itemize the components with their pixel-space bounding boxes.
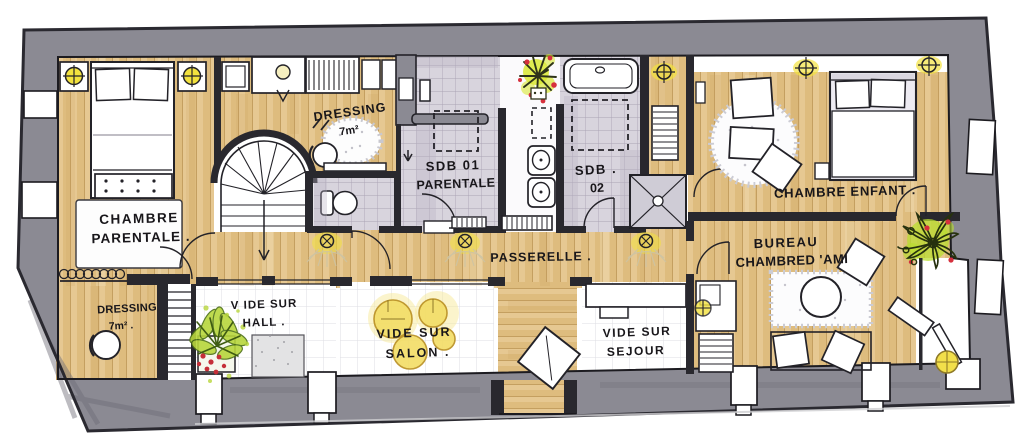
svg-text:SDB .: SDB . <box>575 161 618 178</box>
svg-text:02: 02 <box>590 181 605 196</box>
svg-text:PARENTALE .: PARENTALE . <box>91 229 190 247</box>
svg-text:VIDE SUR: VIDE SUR <box>376 325 451 342</box>
svg-text:V IDE SUR: V IDE SUR <box>231 298 298 312</box>
svg-text:PASSERELLE .: PASSERELLE . <box>490 249 592 265</box>
svg-text:SDB 01: SDB 01 <box>425 157 480 174</box>
svg-text:SALON .: SALON . <box>385 345 450 361</box>
svg-text:PARENTALE: PARENTALE <box>416 176 495 193</box>
svg-text:BUREAU: BUREAU <box>753 234 818 251</box>
svg-text:CHAMBRE: CHAMBRE <box>99 210 179 227</box>
svg-text:SEJOUR: SEJOUR <box>607 343 666 359</box>
svg-text:VIDE SUR: VIDE SUR <box>602 324 671 340</box>
svg-text:HALL .: HALL . <box>242 316 285 329</box>
svg-text:7m² .: 7m² . <box>108 319 133 332</box>
